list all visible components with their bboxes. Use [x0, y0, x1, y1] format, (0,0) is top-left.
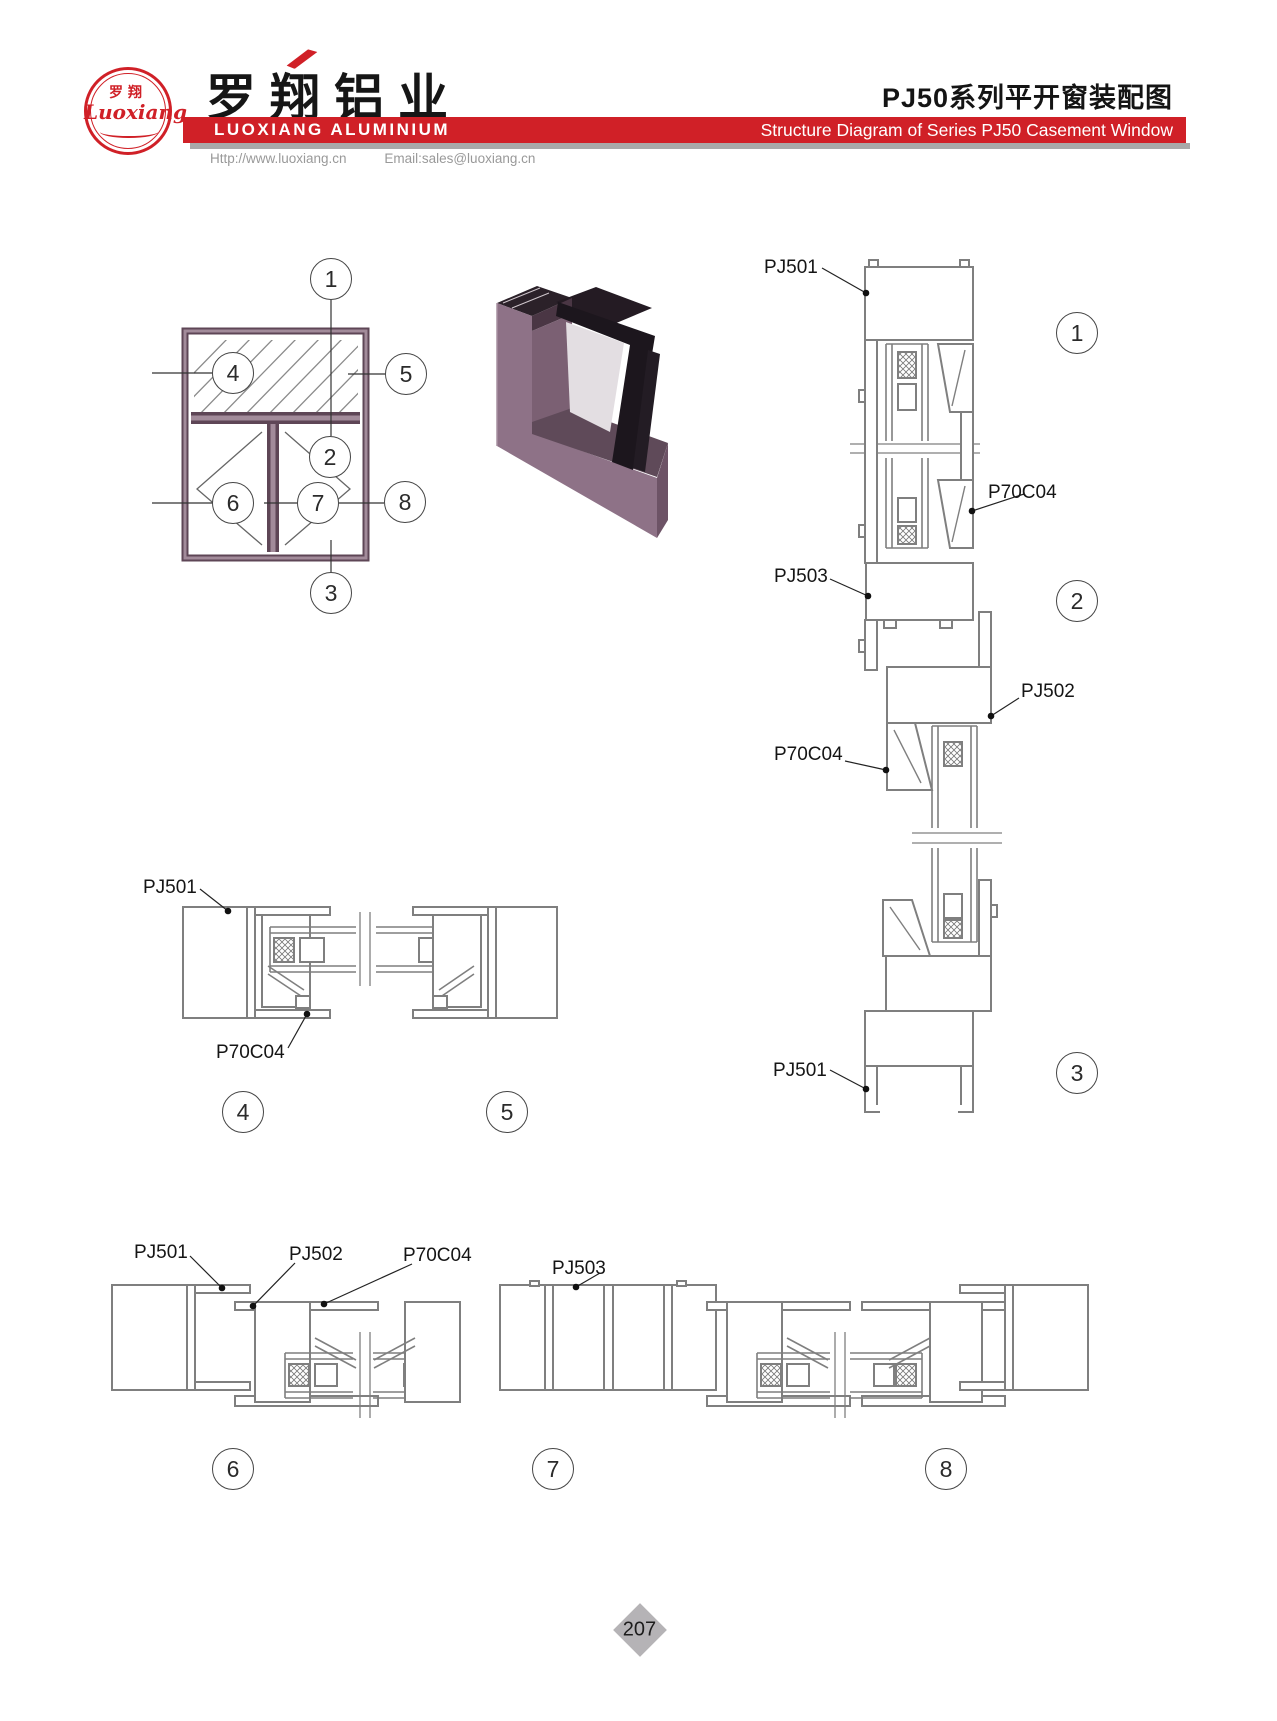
- schematic-callout-3: 3: [310, 572, 352, 614]
- vertical-section-drawing: [822, 260, 1024, 1112]
- part-label-pj501-bot-row: PJ501: [134, 1242, 188, 1264]
- catalog-page: 罗翔 Luoxiang 罗翔铝业 PJ50系列平开窗装配图 LUOXIANG A…: [0, 0, 1277, 1721]
- section-callout-3: 3: [1056, 1052, 1098, 1094]
- part-label-pj501-top: PJ501: [764, 257, 818, 279]
- technical-drawings: [0, 0, 1277, 1721]
- part-label-pj501-mid: PJ501: [143, 877, 197, 899]
- part-label-p70c04-lower: P70C04: [774, 744, 843, 766]
- schematic-callout-6: 6: [212, 482, 254, 524]
- horizontal-section-bottom-drawing: [112, 1256, 1088, 1418]
- section-callout-5: 5: [486, 1091, 528, 1133]
- section-callout-1: 1: [1056, 312, 1098, 354]
- part-label-pj502-vert: PJ502: [1021, 681, 1075, 703]
- part-label-p70c04-mid: P70C04: [216, 1042, 285, 1064]
- part-label-pj503-vert: PJ503: [774, 566, 828, 588]
- part-label-pj503-bot-row: PJ503: [552, 1258, 606, 1280]
- schematic-callout-4: 4: [212, 352, 254, 394]
- section-callout-2: 2: [1056, 580, 1098, 622]
- profile-3d-render: [497, 286, 668, 538]
- schematic-callout-8: 8: [384, 481, 426, 523]
- section-callout-4: 4: [222, 1091, 264, 1133]
- page-number: 207: [623, 1619, 656, 1642]
- schematic-callout-1: 1: [310, 258, 352, 300]
- part-label-p70c04-bot-row: P70C04: [403, 1245, 472, 1267]
- schematic-callout-5: 5: [385, 353, 427, 395]
- part-label-p70c04-upper: P70C04: [988, 482, 1057, 504]
- section-callout-8: 8: [925, 1448, 967, 1490]
- window-schematic-drawing: [150, 300, 414, 572]
- schematic-callout-7: 7: [297, 482, 339, 524]
- schematic-callout-2: 2: [309, 436, 351, 478]
- section-callout-6: 6: [212, 1448, 254, 1490]
- horizontal-section-mid-drawing: [183, 889, 557, 1048]
- section-callout-7: 7: [532, 1448, 574, 1490]
- part-label-pj501-bottom: PJ501: [773, 1060, 827, 1082]
- part-label-pj502-bot-row: PJ502: [289, 1244, 343, 1266]
